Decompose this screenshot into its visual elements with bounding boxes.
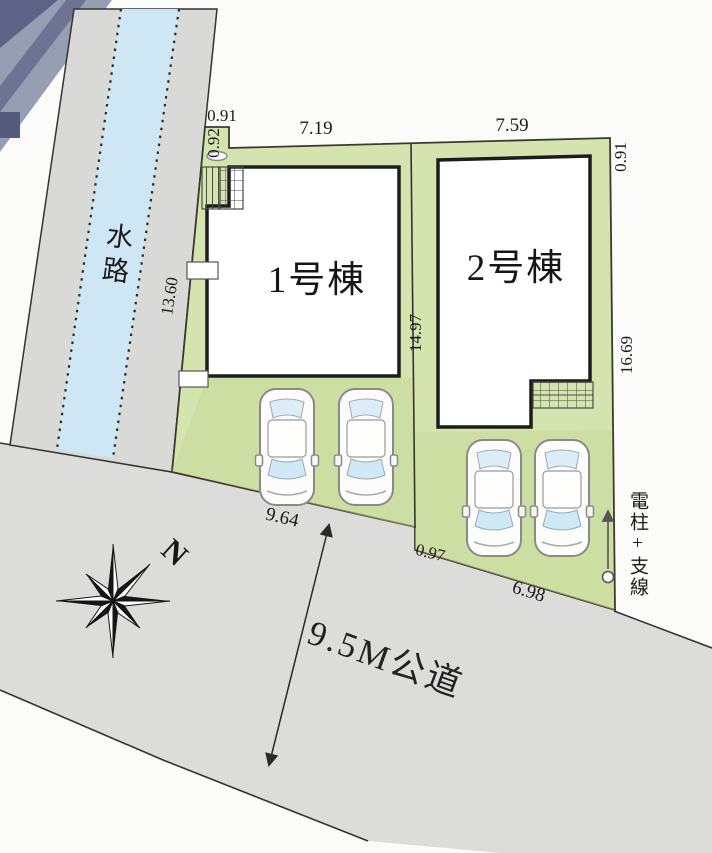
car-lot2-left	[463, 440, 526, 556]
building-2-label: 2号棟	[467, 248, 566, 289]
building-1-label: 1号棟	[268, 260, 367, 301]
car-lot1-left	[256, 389, 319, 505]
dim-divider: 14.97	[406, 313, 425, 352]
building-1-step-lower	[179, 371, 208, 387]
dim-lot1-top: 7.19	[299, 118, 332, 139]
utility-pole-label: 電柱+支線	[624, 491, 651, 598]
car-lot2-right	[531, 440, 594, 556]
building-1-porch	[202, 167, 243, 209]
site-plan-drawing: N 1号棟 2号棟 9.5M公道 0.91 0.92 7.19 7.59 0.9…	[0, 0, 712, 853]
car-lot1-right	[335, 389, 398, 505]
waterway-label: 水路	[92, 220, 139, 292]
dim-right-side: 16.69	[617, 336, 636, 374]
utility-pole-circle	[603, 572, 614, 583]
dim-lot2-top: 7.59	[495, 115, 528, 136]
dim-right-upper: 0.91	[611, 142, 630, 172]
site-plan: N 1号棟 2号棟 9.5M公道 0.91 0.92 7.19 7.59 0.9…	[0, 0, 712, 853]
building-1-step-upper	[187, 262, 218, 279]
building-2-porch	[533, 382, 593, 408]
dim-jog-height: 0.92	[204, 128, 223, 158]
dim-jog-width: 0.91	[207, 106, 237, 125]
